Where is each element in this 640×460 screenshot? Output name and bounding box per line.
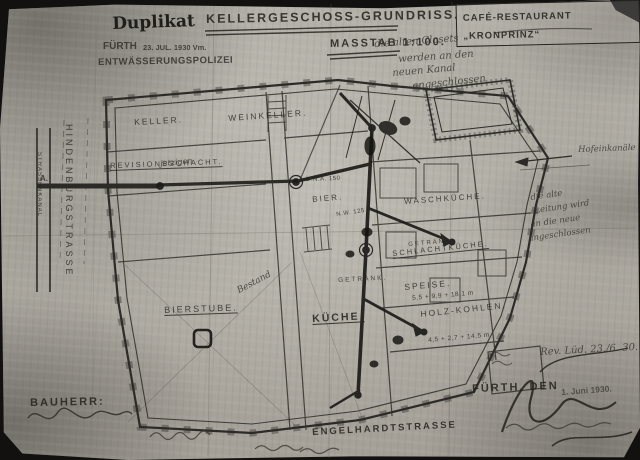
client-label: BAUHERR:: [30, 397, 105, 409]
street-label-hindenburgstrasse: HINDENBURGSTRASSE: [64, 124, 73, 278]
architect-signature-flourish: [502, 348, 632, 446]
office-stamp: ENTWÄSSERUNGSPOLIZEI: [98, 56, 233, 68]
scanned-floorplan-document: Duplikat FÜRTH 23. JUL. 1930 Vm. ENTWÄSS…: [0, 0, 640, 460]
court-canal-label: Hofeinkanäle: [578, 144, 636, 154]
client-signature-flourish: [28, 408, 132, 418]
building-outline: [106, 80, 548, 433]
hof-canal-arrow: [516, 156, 590, 170]
courtyard-marks: [125, 252, 362, 425]
project-title: CAFÉ-RESTAURANT „KRONPRINZ“: [463, 10, 572, 41]
pipe-dim-1: D.N.A. 150: [306, 176, 341, 183]
project-title-box: CAFÉ-RESTAURANT „KRONPRINZ“: [456, 0, 640, 47]
date-stamp-date: 23. JUL. 1930 Vm.: [143, 44, 206, 52]
street-canal-lines: [37, 118, 298, 292]
date-stamp-city: FÜRTH: [103, 42, 137, 52]
room-label-kueche: KÜCHE.: [312, 311, 365, 324]
canal-marker-a: A.: [40, 175, 48, 183]
street-canal-label: STRASSENKANAL: [36, 152, 42, 217]
duplicate-mark: Duplikat: [112, 13, 195, 33]
